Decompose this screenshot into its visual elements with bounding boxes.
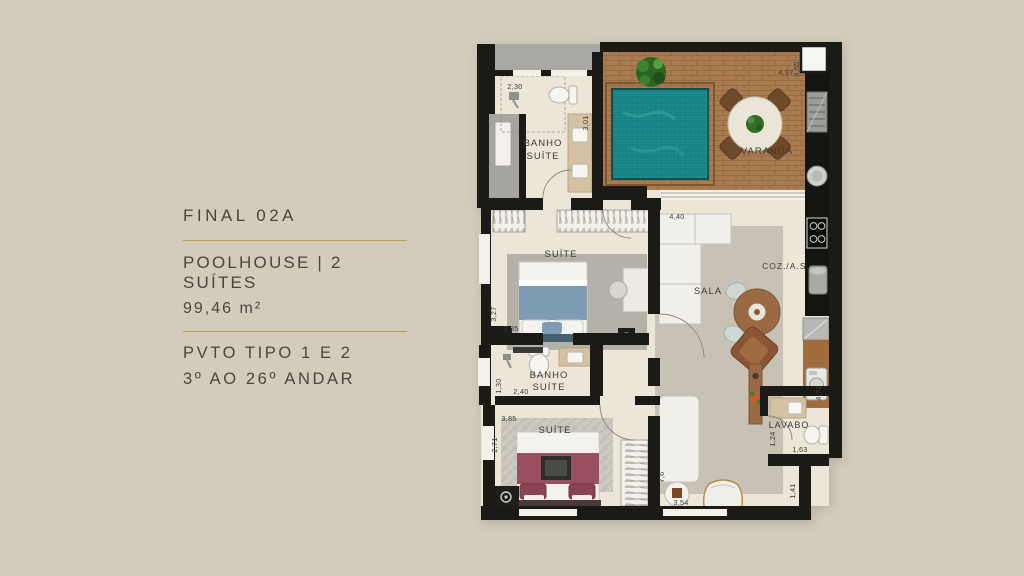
toilet-icon	[549, 86, 577, 104]
bed-suite-2	[515, 432, 601, 507]
dim-sala-bottom: 3,54	[673, 498, 688, 507]
cooktop-icon	[807, 218, 827, 248]
dim-banho2-width: 2,40	[513, 387, 528, 396]
dim-suite2-depth: 2,71	[490, 437, 499, 452]
label-varanda: VARANDA	[741, 146, 793, 157]
label-banho-suite-1: BANHO	[524, 138, 563, 149]
bed-suite-1	[517, 262, 589, 342]
shelf	[513, 347, 543, 353]
sink-icon	[788, 402, 802, 414]
label-sala: SALA	[694, 286, 722, 297]
plan-title: POOLHOUSE | 2 SUÍTES	[183, 253, 407, 293]
window-icon	[663, 509, 727, 516]
window-icon	[478, 358, 490, 386]
window-icon	[479, 234, 490, 284]
dim-sala-width: 4,40	[669, 212, 684, 221]
sill	[513, 70, 541, 76]
label-cozinha: COZ./A.S.	[762, 261, 810, 271]
sink-icon	[567, 352, 583, 363]
sink-icon	[572, 164, 588, 178]
dim-banho1-depth: 3,01	[581, 115, 590, 130]
dim-sala-depth: 7,6	[657, 472, 666, 483]
floor-plan: BANHO SUÍTE VARANDA SUÍTE SALA COZ./A.S.…	[455, 28, 857, 530]
label-lavabo: LAVABO	[769, 420, 810, 430]
window-icon	[519, 509, 577, 516]
wardrobe-icon	[493, 210, 525, 232]
external-corridor	[495, 44, 600, 70]
chaise-icon	[659, 396, 699, 482]
sill	[551, 70, 587, 76]
window-icon	[801, 46, 827, 72]
floors-label: 3º AO 26º ANDAR	[183, 370, 407, 389]
label-banho-suite-1: SUÍTE	[527, 151, 560, 162]
dim-servico-depth: 4,72	[814, 385, 823, 400]
shower-icon	[509, 92, 519, 100]
dim-suite2-width: 3,85	[501, 414, 516, 423]
dim-lavabo-width: 1,63	[792, 445, 807, 454]
dim-banho2-depth: 1,30	[494, 378, 503, 393]
dim-banho1-width: 2,30	[507, 82, 522, 91]
label-suite-2: SUÍTE	[539, 425, 572, 436]
shower-icon	[503, 354, 511, 360]
label-suite-1: SUÍTE	[545, 249, 578, 260]
dim-varanda-depth: 3,55	[792, 61, 801, 76]
info-panel: FINAL 02A POOLHOUSE | 2 SUÍTES 99,46 m² …	[183, 206, 407, 389]
gold-divider	[183, 331, 407, 332]
decor-box	[672, 488, 682, 498]
gold-divider	[183, 240, 407, 241]
label-banho-suite-2: SUÍTE	[533, 382, 566, 393]
unit-label: FINAL 02A	[183, 206, 407, 226]
pool-water	[612, 89, 708, 179]
label-banho-suite-2: BANHO	[530, 370, 569, 381]
dim-recess-depth: 1,41	[788, 483, 797, 498]
kitchen-counters	[803, 52, 829, 408]
pavement-label: PVTO TIPO 1 E 2	[183, 344, 407, 363]
wardrobe-icon	[557, 210, 651, 232]
desk-chair-icon	[609, 281, 627, 299]
dim-lavabo-depth: 1,24	[768, 431, 777, 446]
plan-area: 99,46 m²	[183, 300, 407, 318]
plant-icon	[636, 57, 666, 87]
dim-suite1-depth: 3,27	[489, 306, 498, 321]
sliding-door	[661, 190, 805, 200]
pool	[606, 83, 714, 185]
wardrobe-icon	[621, 440, 648, 506]
dim-suite1-width: 3,85	[503, 324, 518, 333]
entry-door	[495, 122, 511, 166]
room-sala	[655, 214, 783, 512]
